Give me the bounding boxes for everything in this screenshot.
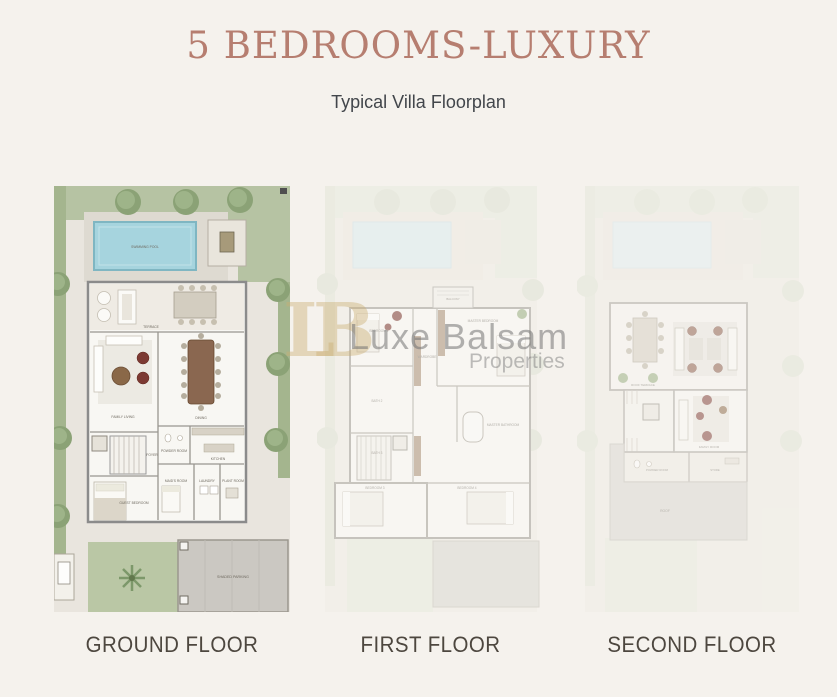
first-floor-label: FIRST FLOOR bbox=[325, 632, 536, 658]
toilet bbox=[634, 460, 640, 468]
sofa bbox=[675, 328, 684, 370]
floorplan-ground: SWIMMING POOL TERRACE FAMILY LIVING DINI… bbox=[54, 186, 290, 612]
terrace-dining-table bbox=[174, 292, 216, 318]
tree-icon bbox=[264, 428, 288, 452]
lawn-ghost bbox=[605, 538, 697, 612]
pool-ghost bbox=[613, 222, 711, 268]
bed bbox=[497, 336, 525, 376]
pool-ghost bbox=[353, 222, 451, 268]
kitchen-counter bbox=[192, 428, 244, 435]
room-label: MASTER BEDROOM bbox=[468, 319, 499, 323]
lift bbox=[643, 404, 659, 420]
room-label: LAUNDRY bbox=[199, 479, 215, 483]
room-label: ROOF bbox=[660, 509, 670, 513]
plant-room-unit bbox=[226, 488, 238, 498]
room-label: POWDER ROOM bbox=[161, 449, 187, 453]
sofa bbox=[106, 336, 142, 345]
room-label: MASTER BATHROOM bbox=[487, 423, 520, 427]
page-root: { "page": { "background_color": "#f5f2ed… bbox=[0, 0, 837, 697]
room-label: BATH 3 bbox=[372, 451, 383, 455]
page-subtitle: Typical Villa Floorplan bbox=[0, 92, 837, 113]
ottoman bbox=[137, 352, 149, 364]
bed-pillows bbox=[162, 486, 180, 492]
room-label: KITCHEN bbox=[211, 457, 226, 461]
shelf bbox=[725, 458, 739, 464]
lift bbox=[92, 436, 107, 451]
bed bbox=[357, 314, 379, 352]
room-label: FAMILY ROOM bbox=[699, 445, 720, 449]
tree-icon bbox=[227, 187, 253, 213]
dryer bbox=[210, 486, 218, 494]
room-label: DINING bbox=[195, 416, 207, 420]
room-label: SWIMMING POOL bbox=[131, 245, 159, 249]
basin bbox=[647, 462, 652, 467]
sofa bbox=[94, 346, 103, 392]
lift bbox=[393, 436, 407, 450]
hedge-ghost bbox=[325, 186, 335, 586]
first-plan-drawing: MASTER BEDROOM MASTER BATHROOM WARDROBE … bbox=[317, 186, 544, 612]
lounge-table bbox=[707, 338, 721, 360]
tree-icon bbox=[115, 189, 141, 215]
room-label: SHADED PARKING bbox=[217, 575, 249, 579]
page-title: 5 BEDROOMS-LUXURY bbox=[0, 24, 837, 67]
room-label: FAMILY LIVING bbox=[111, 415, 135, 419]
bed-pillows bbox=[96, 484, 124, 491]
tree-icon bbox=[266, 278, 290, 302]
room-label: PLANT ROOM bbox=[222, 479, 244, 483]
plant-icon bbox=[648, 373, 658, 383]
kitchen-island bbox=[204, 444, 234, 452]
ottoman bbox=[137, 372, 149, 384]
plant-icon bbox=[618, 373, 628, 383]
faded-layer: MASTER BEDROOM MASTER BATHROOM WARDROBE … bbox=[317, 186, 544, 612]
second-floor-label: SECOND FLOOR bbox=[585, 632, 799, 658]
bathtub bbox=[463, 412, 483, 442]
pavilion-ghost bbox=[465, 220, 501, 264]
room-label: WARDROBE bbox=[418, 355, 437, 359]
ottoman bbox=[702, 395, 712, 405]
side-table bbox=[719, 406, 727, 414]
bed bbox=[343, 492, 383, 526]
ottoman bbox=[702, 431, 712, 441]
washer bbox=[200, 486, 208, 494]
room-label: BEDROOM 3 bbox=[365, 486, 384, 490]
room-label: BEDROOM 2 bbox=[369, 329, 388, 333]
armchair bbox=[688, 364, 697, 373]
stairs bbox=[110, 436, 146, 474]
hedge-left bbox=[54, 186, 66, 598]
roof-area bbox=[433, 541, 539, 607]
room-label: GUEST BEDROOM bbox=[119, 501, 149, 505]
gate-door bbox=[58, 562, 70, 584]
sofa bbox=[728, 328, 737, 370]
room-label: FOYER bbox=[146, 453, 158, 457]
tree-icon bbox=[266, 352, 290, 376]
floorplan-first: MASTER BEDROOM MASTER BATHROOM WARDROBE … bbox=[317, 186, 544, 612]
sofa bbox=[679, 400, 688, 440]
armchair bbox=[688, 327, 697, 336]
hedge-ghost bbox=[585, 186, 595, 586]
north-marker bbox=[280, 188, 287, 194]
lawn-ghost bbox=[347, 538, 433, 612]
armchair bbox=[714, 364, 723, 373]
floorplan-second: ROOF TERRACE FAMILY ROOM POWDER ROOM STO… bbox=[577, 186, 807, 612]
pavilion-fixture bbox=[220, 232, 234, 252]
stairs bbox=[624, 390, 674, 452]
second-plan-drawing: ROOF TERRACE FAMILY ROOM POWDER ROOM STO… bbox=[577, 186, 807, 612]
terrace-floor bbox=[90, 284, 244, 330]
room-label: STORE bbox=[710, 468, 720, 472]
tree-icon bbox=[173, 189, 199, 215]
room-label: POWDER ROOM bbox=[646, 468, 669, 472]
room-label: TERRACE bbox=[143, 325, 160, 329]
pavilion-ghost bbox=[725, 220, 761, 264]
faded-layer: ROOF TERRACE FAMILY ROOM POWDER ROOM STO… bbox=[577, 186, 804, 612]
dining-table bbox=[188, 340, 214, 404]
parking-post bbox=[180, 542, 188, 550]
plant-icon bbox=[517, 309, 527, 319]
coffee-table bbox=[112, 367, 130, 385]
room-label: MAID'S ROOM bbox=[165, 479, 187, 483]
ottoman bbox=[392, 311, 402, 321]
room-label: BALCONY bbox=[446, 297, 460, 301]
parking-post bbox=[180, 596, 188, 604]
room-label: ROOF TERRACE bbox=[631, 383, 655, 387]
room-label: BEDROOM 4 bbox=[457, 486, 476, 490]
terrace-dining-table bbox=[633, 318, 657, 362]
room-label: BATH 2 bbox=[372, 399, 383, 403]
bed bbox=[467, 492, 513, 524]
ground-plan-drawing: SWIMMING POOL TERRACE FAMILY LIVING DINI… bbox=[54, 186, 290, 612]
ottoman bbox=[696, 412, 704, 420]
ground-floor-label: GROUND FLOOR bbox=[62, 632, 281, 658]
lounge-table bbox=[689, 338, 703, 360]
armchair bbox=[714, 327, 723, 336]
